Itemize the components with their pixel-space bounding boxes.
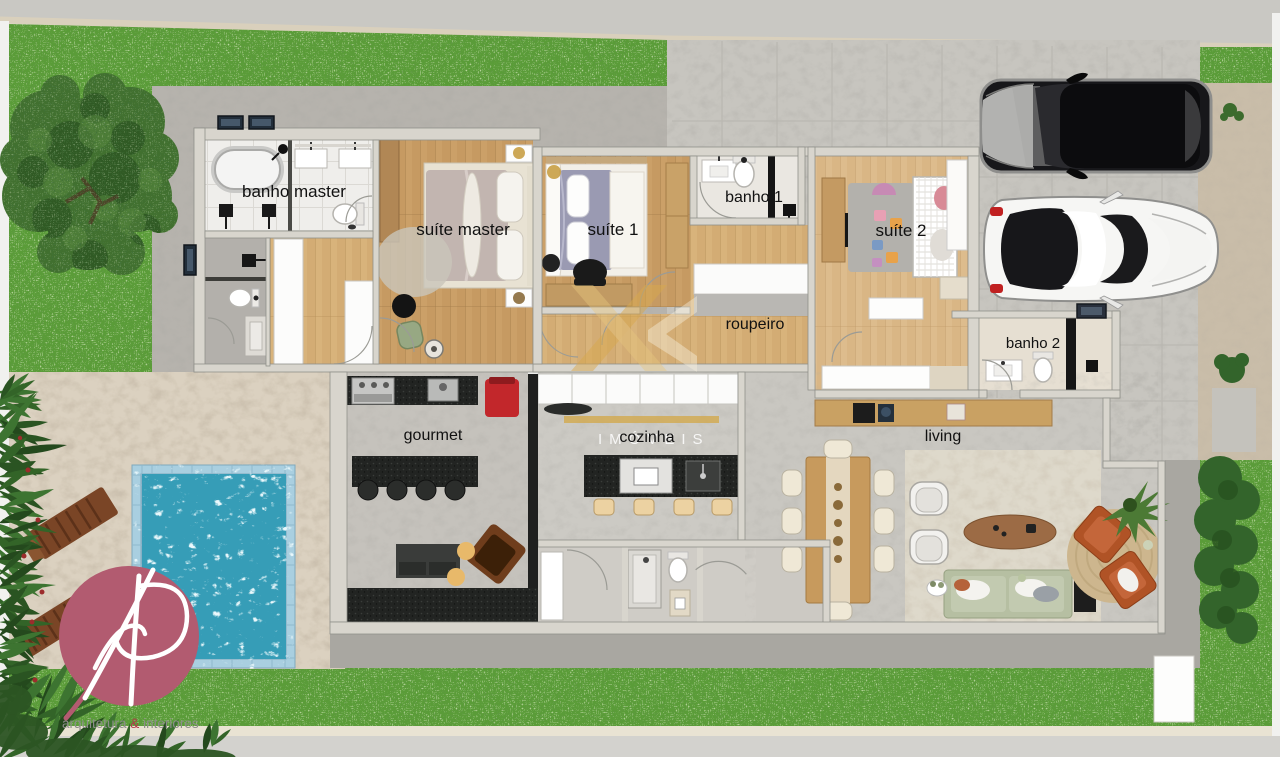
svg-text:banho 1: banho 1 — [725, 189, 783, 206]
svg-text:suíte 2: suíte 2 — [875, 221, 926, 240]
svg-text:cozinha: cozinha — [619, 429, 674, 446]
svg-text:arquitetura & interiores: arquitetura & interiores — [62, 716, 199, 731]
svg-text:living: living — [925, 428, 961, 445]
svg-text:banho master: banho master — [242, 182, 346, 201]
svg-text:gourmet: gourmet — [404, 427, 463, 444]
svg-text:banho 2: banho 2 — [1006, 335, 1060, 352]
svg-text:suíte 1: suíte 1 — [587, 220, 638, 239]
svg-text:suíte master: suíte master — [416, 220, 510, 239]
svg-text:roupeiro: roupeiro — [726, 316, 785, 333]
